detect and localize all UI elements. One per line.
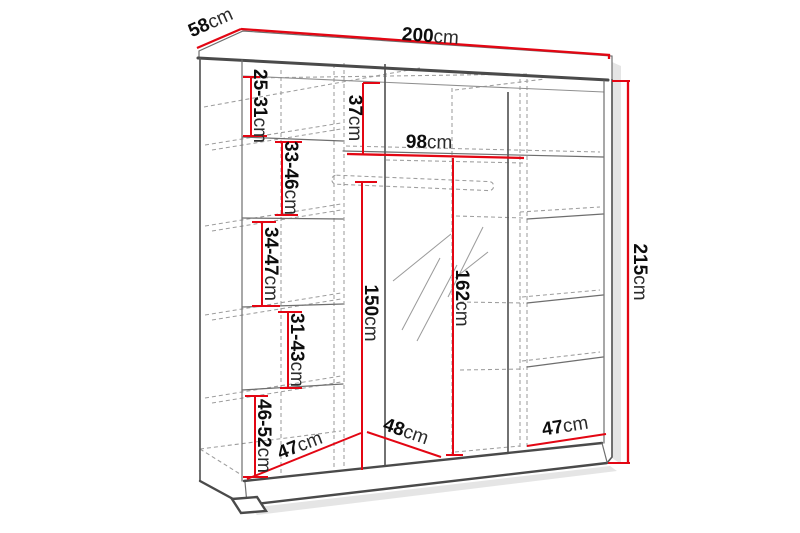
label-middle-width: 98cm <box>406 132 453 154</box>
label-shelf-gap-2: 33-46cm <box>280 141 301 215</box>
diagram-canvas: 58cm 200cm 215cm 25-31cm 33-46cm 34-47cm… <box>0 0 800 533</box>
label-shelf-gap-3: 34-47cm <box>260 227 281 301</box>
wardrobe-dimension-diagram: 58cm 200cm 215cm 25-31cm 33-46cm 34-47cm… <box>0 0 800 533</box>
label-depth: 58cm <box>185 4 236 42</box>
label-shelf-gap-1: 25-31cm <box>249 69 270 143</box>
label-interior-height: 150cm <box>360 284 381 341</box>
label-height: 215cm <box>629 243 650 300</box>
label-mirror-height: 162cm <box>451 269 472 326</box>
label-shelf-gap-5: 46-52cm <box>253 399 274 473</box>
label-width: 200cm <box>401 24 459 49</box>
label-shelf-gap-4: 31-43cm <box>286 313 307 387</box>
label-top-compartment: 37cm <box>344 95 365 141</box>
